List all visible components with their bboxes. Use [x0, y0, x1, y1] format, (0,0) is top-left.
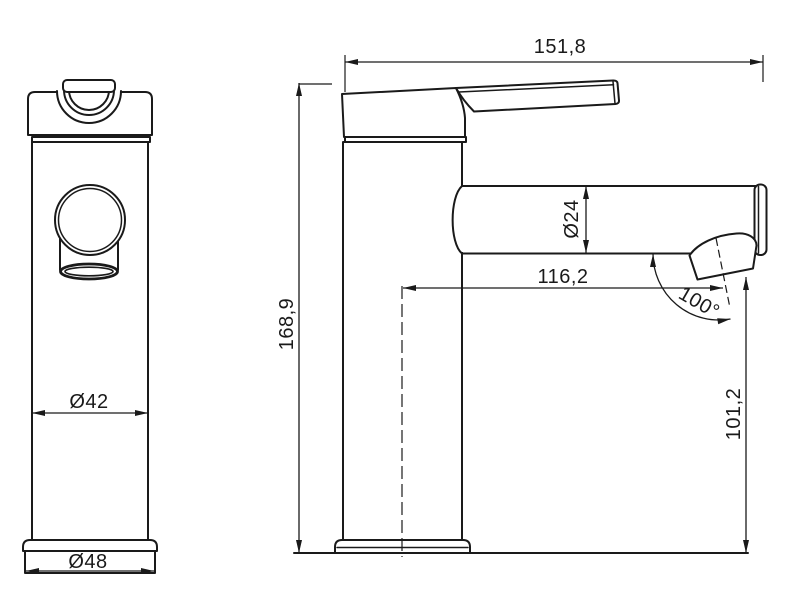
base-diameter-dimension-label: Ø48 — [68, 552, 107, 572]
front-spout-hub-outer — [55, 185, 125, 255]
overall-height-dimension-label: 168,9 — [277, 298, 297, 351]
faucet-drawing — [0, 0, 787, 600]
front-view — [23, 80, 157, 573]
side-cap-outline — [342, 88, 465, 137]
front-base-collar — [23, 540, 157, 551]
overall-width-dimension-label: 151,8 — [534, 37, 587, 57]
spout-diameter-dimension-label: Ø24 — [562, 199, 582, 238]
technical-drawing-canvas: 151,8 168,9 Ø24 116,2 100° 101,2 Ø42 Ø48 — [0, 0, 787, 600]
outlet-height-dimension-label: 101,2 — [724, 388, 744, 441]
spout-reach-dimension-label: 116,2 — [537, 267, 588, 287]
body-diameter-dimension-label: Ø42 — [69, 392, 108, 412]
front-aerator-outlet-rim — [61, 264, 118, 279]
side-cap-ring — [345, 137, 466, 142]
front-handle-bar — [63, 80, 115, 92]
